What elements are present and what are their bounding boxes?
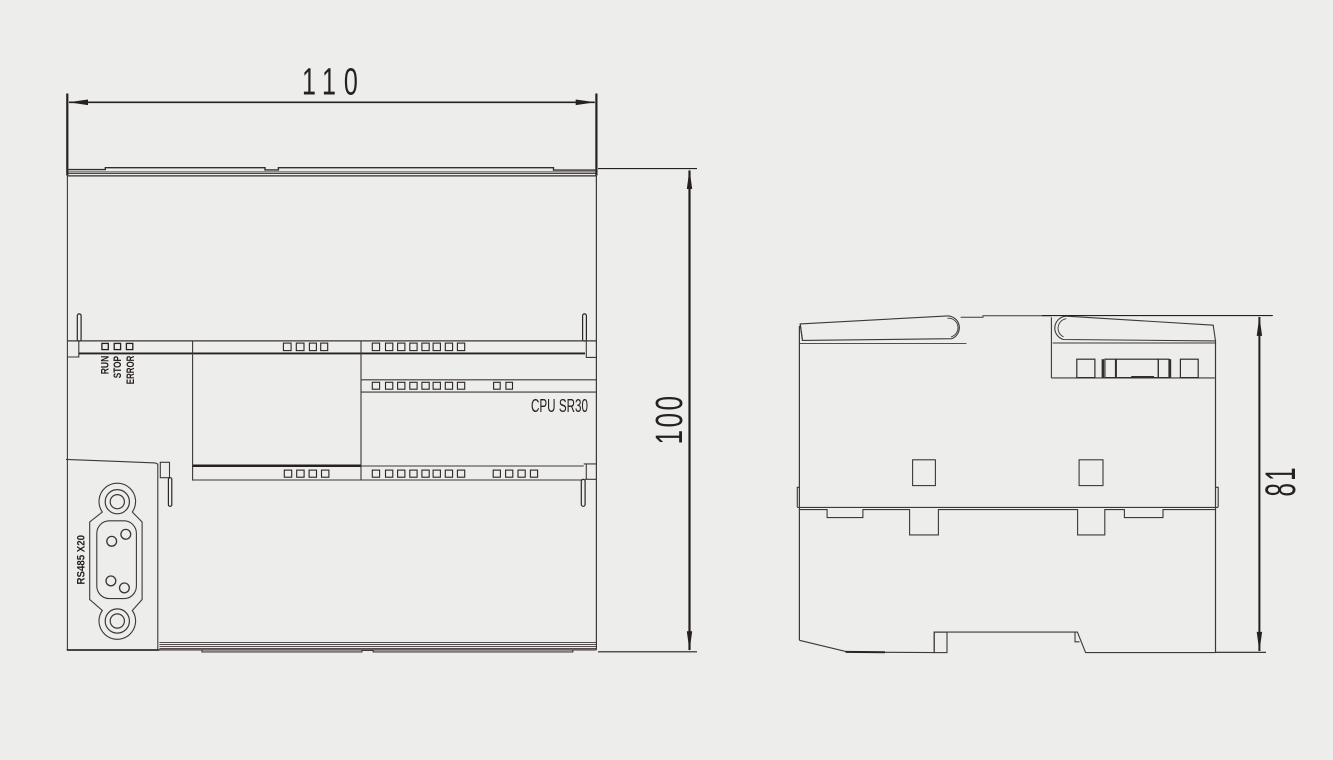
svg-text:100: 100 <box>647 394 690 445</box>
svg-text:ERROR: ERROR <box>125 356 138 385</box>
svg-text:RUN: RUN <box>100 356 112 375</box>
svg-text:RS485 X20: RS485 X20 <box>76 535 88 585</box>
svg-text:STOP: STOP <box>112 356 124 379</box>
svg-text:110: 110 <box>302 60 366 102</box>
svg-text:81: 81 <box>1257 465 1305 496</box>
svg-text:CPU SR30: CPU SR30 <box>531 396 588 416</box>
